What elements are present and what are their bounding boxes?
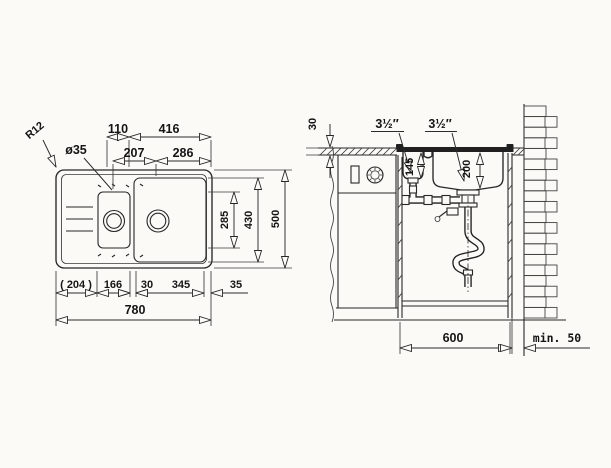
- drawing-canvas: R12 ø35 110 416 207 286 285 430 500 ( 20…: [0, 0, 611, 468]
- small-bowl: [98, 192, 130, 248]
- large-bowl-drain-inner: [150, 213, 166, 229]
- dim-500: 500: [270, 210, 282, 228]
- strainer-flange: [457, 190, 479, 195]
- small-bowl-drain-inner: [107, 214, 122, 229]
- drain-size-label-2: 3½″: [428, 117, 451, 131]
- break-line: [331, 146, 334, 322]
- flange-lip-left: [396, 144, 403, 148]
- radius-leader: [43, 140, 56, 167]
- dim-286: 286: [173, 146, 194, 160]
- pipe-end-cap: [402, 196, 409, 205]
- dim-430: 430: [243, 211, 255, 229]
- valve-outlet: [435, 217, 440, 222]
- dim-204: ( 204 ): [60, 279, 92, 291]
- sink-section-view: 30 3½″ 3½″ 145 200 600 min. 50: [306, 104, 590, 356]
- extension-lines-top-view: [56, 140, 292, 326]
- technical-drawing-svg: R12 ø35 110 416 207 286 285 430 500 ( 20…: [0, 0, 611, 468]
- dim-285: 285: [219, 211, 231, 229]
- hole-diameter-label: ø35: [65, 143, 87, 157]
- valve-spout: [439, 211, 447, 217]
- depth-large-bowl-label: 200: [461, 160, 473, 178]
- radius-label: R12: [23, 120, 46, 142]
- brick-wall: [524, 104, 557, 356]
- dim-207: 207: [124, 146, 145, 160]
- faucet-hole-marks: [98, 184, 143, 257]
- dim-110: 110: [108, 122, 128, 136]
- counter-thickness-label: 30: [307, 118, 319, 130]
- sink-flange: [397, 147, 514, 152]
- flange-lip-right: [507, 144, 514, 148]
- valve-body: [447, 208, 458, 215]
- dim-345: 345: [172, 279, 190, 291]
- counter-extension-lines: [306, 148, 318, 155]
- dim-416: 416: [159, 122, 180, 136]
- knob-inner: [371, 171, 379, 179]
- drain-size-label-1: 3½″: [375, 117, 398, 131]
- dim-166: 166: [104, 279, 122, 291]
- pipe-nut-2: [442, 196, 450, 205]
- depth-small-bowl-label: 145: [404, 158, 416, 176]
- tail-nut: [410, 186, 417, 193]
- handle-icon: [351, 166, 359, 183]
- bowl-divider: [424, 152, 432, 158]
- dim-35: 35: [230, 279, 242, 291]
- bricks: [524, 106, 557, 318]
- drainboard-grooves: [66, 207, 93, 231]
- pipe-nut-1: [424, 196, 432, 205]
- cabinet-depth-label: 600: [443, 331, 464, 345]
- cabinet-front-panel: [336, 155, 398, 308]
- dim-780: 780: [125, 303, 146, 317]
- wall-gap-label: min. 50: [533, 331, 582, 345]
- sink-top-view: R12 ø35 110 416 207 286 285 430 500 ( 20…: [23, 120, 292, 326]
- small-drain-fitting: [408, 178, 418, 183]
- large-bowl: [134, 178, 206, 262]
- dim-30: 30: [141, 279, 153, 291]
- drain-plumbing: [402, 178, 481, 292]
